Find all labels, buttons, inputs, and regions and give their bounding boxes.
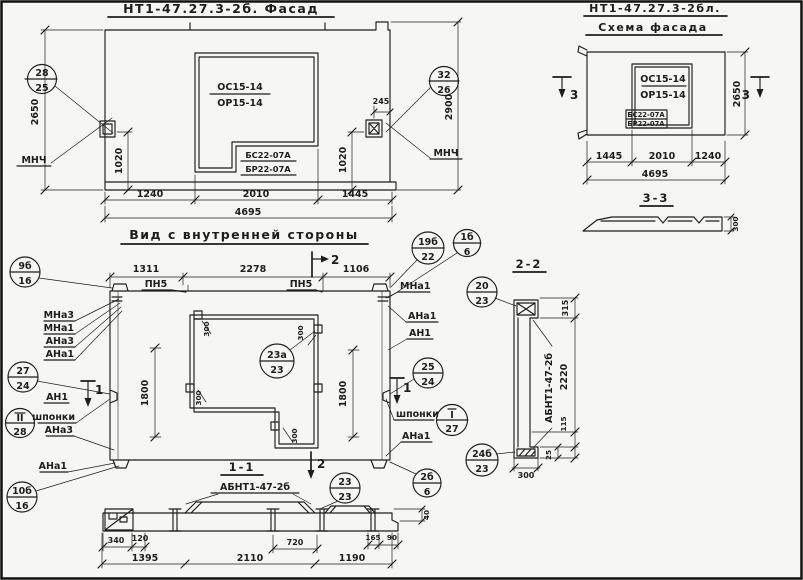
callout-bottom-value: 24 bbox=[16, 381, 30, 392]
inner-dim-1311: 1311 bbox=[133, 264, 159, 275]
schema-window-mark-bottom: ОР15-14 bbox=[640, 90, 686, 101]
callout-top-value: 2б bbox=[420, 472, 434, 483]
callout-top-value: 10б bbox=[12, 486, 32, 497]
callout-top-value: 25 bbox=[421, 362, 434, 373]
inner-label-mna1: МНа1 bbox=[44, 323, 74, 334]
callout-bottom-value: 16 bbox=[15, 501, 29, 512]
section-1-1-dim-90: 90 bbox=[387, 533, 397, 542]
facade-sill-mark-bottom: БР22-07А bbox=[245, 164, 291, 174]
callout-bottom-value: 25 bbox=[35, 83, 48, 94]
inner-dim-side-right: 1800 bbox=[338, 380, 349, 407]
facade-callout-right: 32 26 bbox=[429, 67, 459, 97]
inner-callout-II-28: II 28 bbox=[6, 409, 35, 439]
inner-tab-dim: 300 bbox=[194, 390, 203, 405]
callout-top-value: 19б bbox=[418, 237, 438, 248]
section-1-1-subtitle: АБНТ1-47-2б bbox=[220, 482, 290, 493]
inner-rail-label: ПН5 bbox=[145, 279, 168, 290]
callout-bottom-value: 22 bbox=[421, 252, 434, 263]
section-1-1-dim-120: 120 bbox=[132, 534, 149, 543]
callout-bottom-value: 23 bbox=[475, 464, 488, 475]
schema-sill-mark-top: БС22-07А bbox=[627, 111, 665, 119]
inner-label-ana1-right2: АНа1 bbox=[402, 431, 430, 442]
schema-dim-height: 2650 bbox=[732, 80, 743, 107]
callout-top-value: 28 bbox=[35, 68, 49, 79]
inner-label-an1-left: АН1 bbox=[46, 392, 68, 403]
inner-label-an1-right: АН1 bbox=[409, 328, 431, 339]
inner-callout-I-27: I 27 bbox=[437, 405, 469, 436]
section-1-1-title: 1-1 bbox=[229, 460, 256, 474]
schema-dim-1445: 1445 bbox=[596, 151, 622, 162]
facade-dim-height-right: 2900 bbox=[444, 93, 455, 120]
schema-dim-1240: 1240 bbox=[695, 151, 722, 162]
section-mark-label: 1 bbox=[95, 383, 103, 397]
callout-bottom-value: 24 bbox=[421, 377, 435, 388]
facade-dim-total: 4695 bbox=[235, 207, 261, 218]
inner-tab-dim: 300 bbox=[290, 428, 299, 443]
facade-anchor-label-left: МНЧ bbox=[21, 155, 46, 166]
facade-dim-1445: 1445 bbox=[342, 189, 368, 200]
section-1-1-dim-165: 165 bbox=[365, 533, 380, 542]
inner-label-ana1: АНа1 bbox=[46, 349, 74, 360]
callout-bottom-value: 16 bbox=[18, 276, 32, 287]
facade-dim-height-left: 2650 bbox=[30, 98, 41, 125]
inner-label-ana1-right1: АНа1 bbox=[408, 311, 436, 322]
schema-title-line2: Схема фасада bbox=[598, 21, 707, 34]
callout-top-value: 9б bbox=[18, 261, 32, 272]
inner-tab-dim: 300 bbox=[296, 325, 305, 340]
facade-window-mark-bottom: ОР15-14 bbox=[217, 98, 263, 109]
callout-top-value: I bbox=[450, 410, 454, 421]
schema-window-mark-top: ОС15-14 bbox=[640, 74, 686, 85]
schema-dim-total: 4695 bbox=[642, 169, 668, 180]
callout-bottom-value: 23 bbox=[475, 296, 488, 307]
inner-dim-side-left: 1800 bbox=[140, 379, 151, 406]
section-2-2-dim-25: 25 bbox=[544, 450, 553, 460]
section-2-2-title: 2-2 bbox=[516, 257, 543, 271]
facade-sill-mark-top: БС22-07А bbox=[245, 150, 291, 160]
facade-dim-2010: 2010 bbox=[243, 189, 270, 200]
callout-top-value: 27 bbox=[16, 366, 29, 377]
inner-tab-dim: 300 bbox=[202, 321, 211, 336]
callout-bottom-value: 27 bbox=[445, 424, 458, 435]
section-1-1-dim-2110: 2110 bbox=[237, 553, 264, 564]
inner-label-ana3: АНа3 bbox=[46, 336, 74, 347]
callout-top-value: 24б bbox=[472, 449, 492, 460]
inner-label-mna1-right: МНа1 bbox=[400, 281, 430, 292]
schema-dim-2010: 2010 bbox=[649, 151, 676, 162]
inner-dim-1106: 1106 bbox=[343, 264, 370, 275]
facade-dim-1240: 1240 bbox=[137, 189, 164, 200]
section-2-2-dim-2220: 2220 bbox=[559, 363, 570, 390]
callout-bottom-value: 23 bbox=[338, 492, 351, 503]
section-mark-label: 2 bbox=[331, 253, 339, 267]
section-3-3-thickness: 300 bbox=[731, 216, 740, 231]
facade-dim-anchor-edge: 245 bbox=[373, 97, 390, 106]
inner-label-keys-right: шпонки bbox=[396, 409, 439, 420]
schema-sill-mark-bottom: БР22-07А bbox=[627, 120, 665, 128]
callout-bottom-value: 28 bbox=[13, 427, 27, 438]
facade-anchor-label-right: МНЧ bbox=[433, 148, 458, 159]
section-3-3-title: 3-3 bbox=[643, 191, 670, 205]
inner-label-ana3-lower: АНа3 bbox=[45, 425, 73, 436]
blueprint-sheet: НТ1-47.27.3-2б. Фасад ОС15-14 ОР15-14 БС… bbox=[0, 0, 803, 580]
callout-bottom-value: 6 bbox=[424, 487, 431, 498]
inner-label-mna3: МНа3 bbox=[44, 310, 74, 321]
callout-top-value: 20 bbox=[475, 281, 489, 292]
callout-top-value: 32 bbox=[437, 70, 450, 81]
section-mark-label: 2 bbox=[317, 457, 325, 471]
section-1-1-dim-40: 40 bbox=[422, 510, 431, 520]
callout-top-value: 23 bbox=[338, 477, 351, 488]
callout-bottom-value: 6 bbox=[464, 247, 471, 258]
callout-top-value: 23а bbox=[267, 350, 287, 361]
section-mark-label: 3 bbox=[570, 88, 578, 102]
facade-dim-anchor-right: 1020 bbox=[338, 146, 349, 173]
inner-label-keys-left: шпонки bbox=[32, 412, 75, 423]
panel-drawing-svg: НТ1-47.27.3-2б. Фасад ОС15-14 ОР15-14 БС… bbox=[0, 0, 803, 580]
facade-title: НТ1-47.27.3-2б. Фасад bbox=[123, 1, 319, 16]
section-2-2-dim-width: 300 bbox=[518, 471, 535, 480]
callout-top-value: 1б bbox=[460, 232, 474, 243]
schema-title-line1: НТ1-47.27.3-2бл. bbox=[589, 2, 721, 15]
section-1-1-dim-340: 340 bbox=[108, 536, 125, 545]
facade-window-mark-top: ОС15-14 bbox=[217, 82, 263, 93]
inner-view-title: Вид с внутренней стороны bbox=[129, 227, 358, 242]
section-1-1-dim-1395: 1395 bbox=[132, 553, 158, 564]
callout-bottom-value: 23 bbox=[270, 365, 283, 376]
inner-rail-label: ПН5 bbox=[290, 279, 313, 290]
callout-top-value: II bbox=[16, 413, 23, 424]
section-1-1-dim-720: 720 bbox=[287, 538, 304, 547]
section-2-2-member-label: АБНТ1-47-2б bbox=[544, 353, 555, 423]
section-2-2-dim-315: 315 bbox=[561, 299, 570, 316]
section-1-1-dim-1190: 1190 bbox=[339, 553, 366, 564]
inner-dim-2278: 2278 bbox=[240, 264, 267, 275]
facade-dim-anchor-left: 1020 bbox=[114, 147, 125, 174]
inner-label-ana1-lower: АНа1 bbox=[39, 461, 67, 472]
section-2-2-dim-115: 115 bbox=[559, 416, 568, 431]
